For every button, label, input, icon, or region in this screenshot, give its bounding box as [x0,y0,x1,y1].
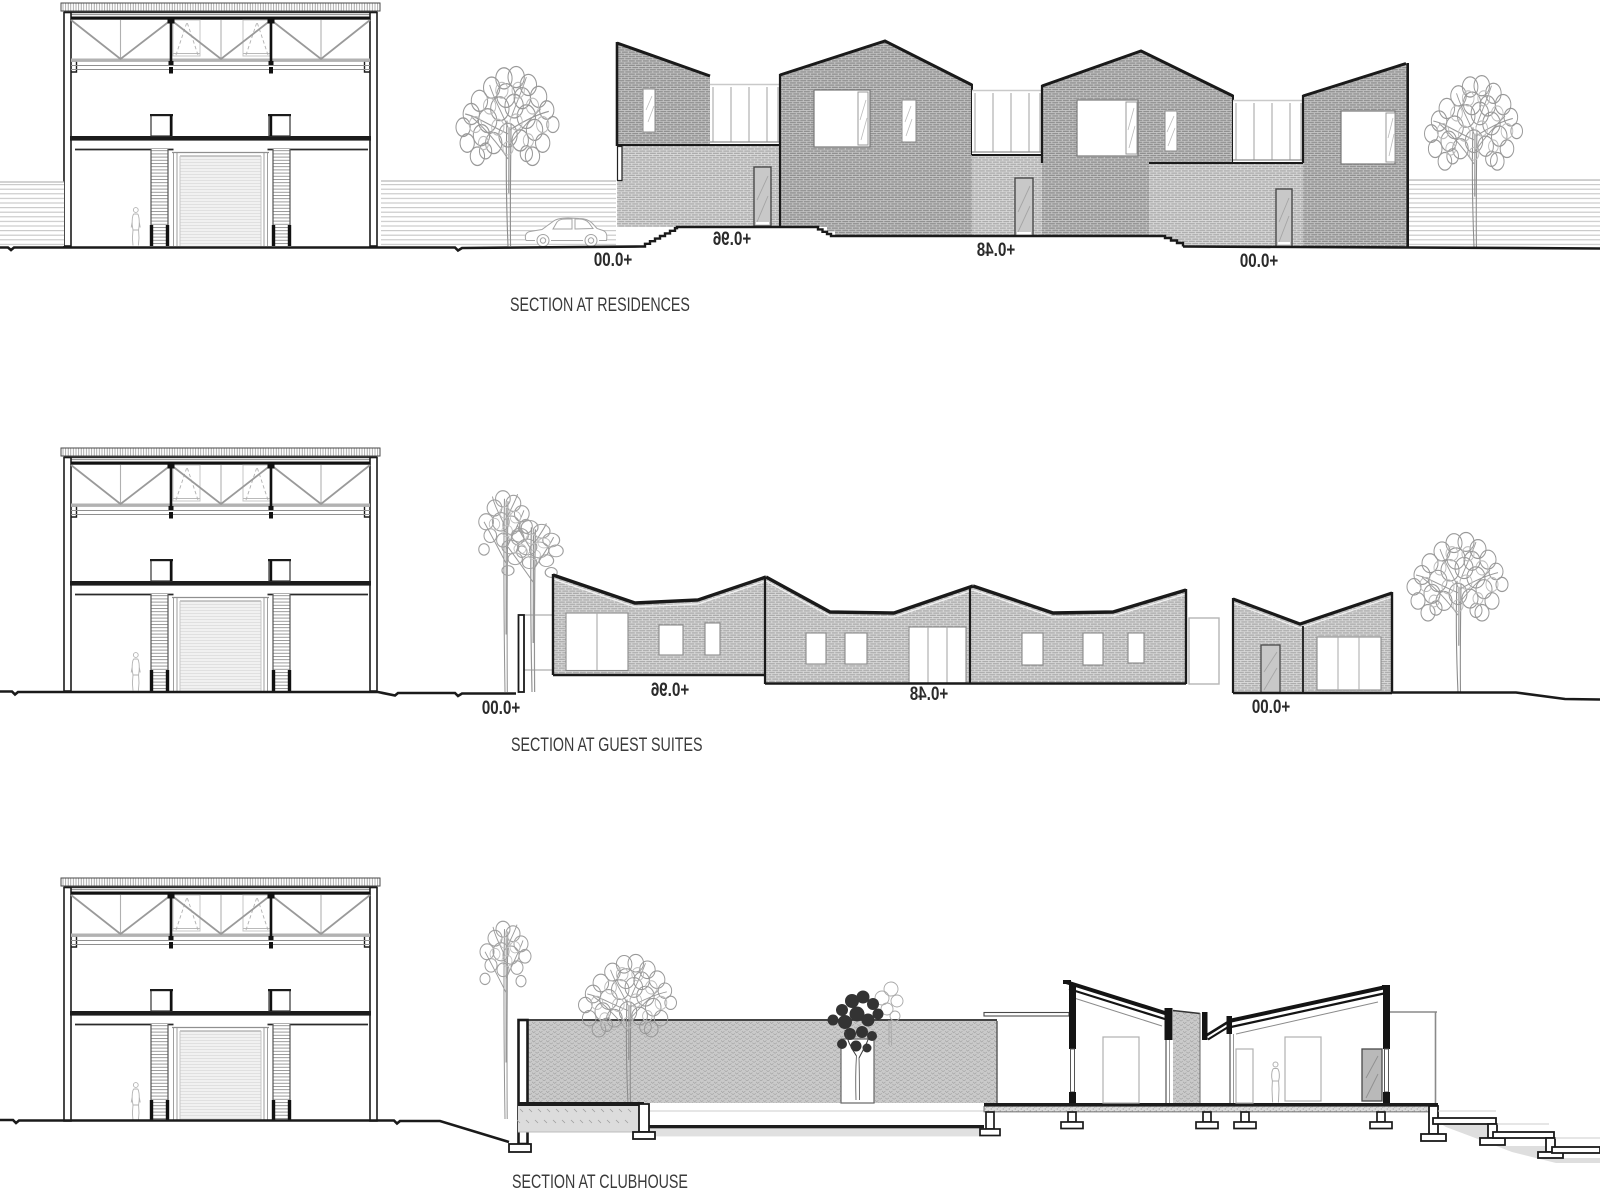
svg-text:+0.00: +0.00 [594,248,632,270]
svg-text:SECTION AT RESIDENCES: SECTION AT RESIDENCES [510,294,690,315]
svg-text:+0.48: +0.48 [976,238,1015,260]
svg-text:+0.48: +0.48 [909,682,948,704]
svg-text:+0.96: +0.96 [713,227,751,249]
svg-text:+0.00: +0.00 [1252,695,1290,717]
svg-text:SECTION AT CLUBHOUSE: SECTION AT CLUBHOUSE [512,1171,688,1192]
svg-text:+0.00: +0.00 [1240,249,1278,271]
svg-text:+0.00: +0.00 [482,696,520,718]
svg-text:SECTION AT GUEST SUITES: SECTION AT GUEST SUITES [511,734,702,755]
svg-text:+0.96: +0.96 [651,678,689,700]
